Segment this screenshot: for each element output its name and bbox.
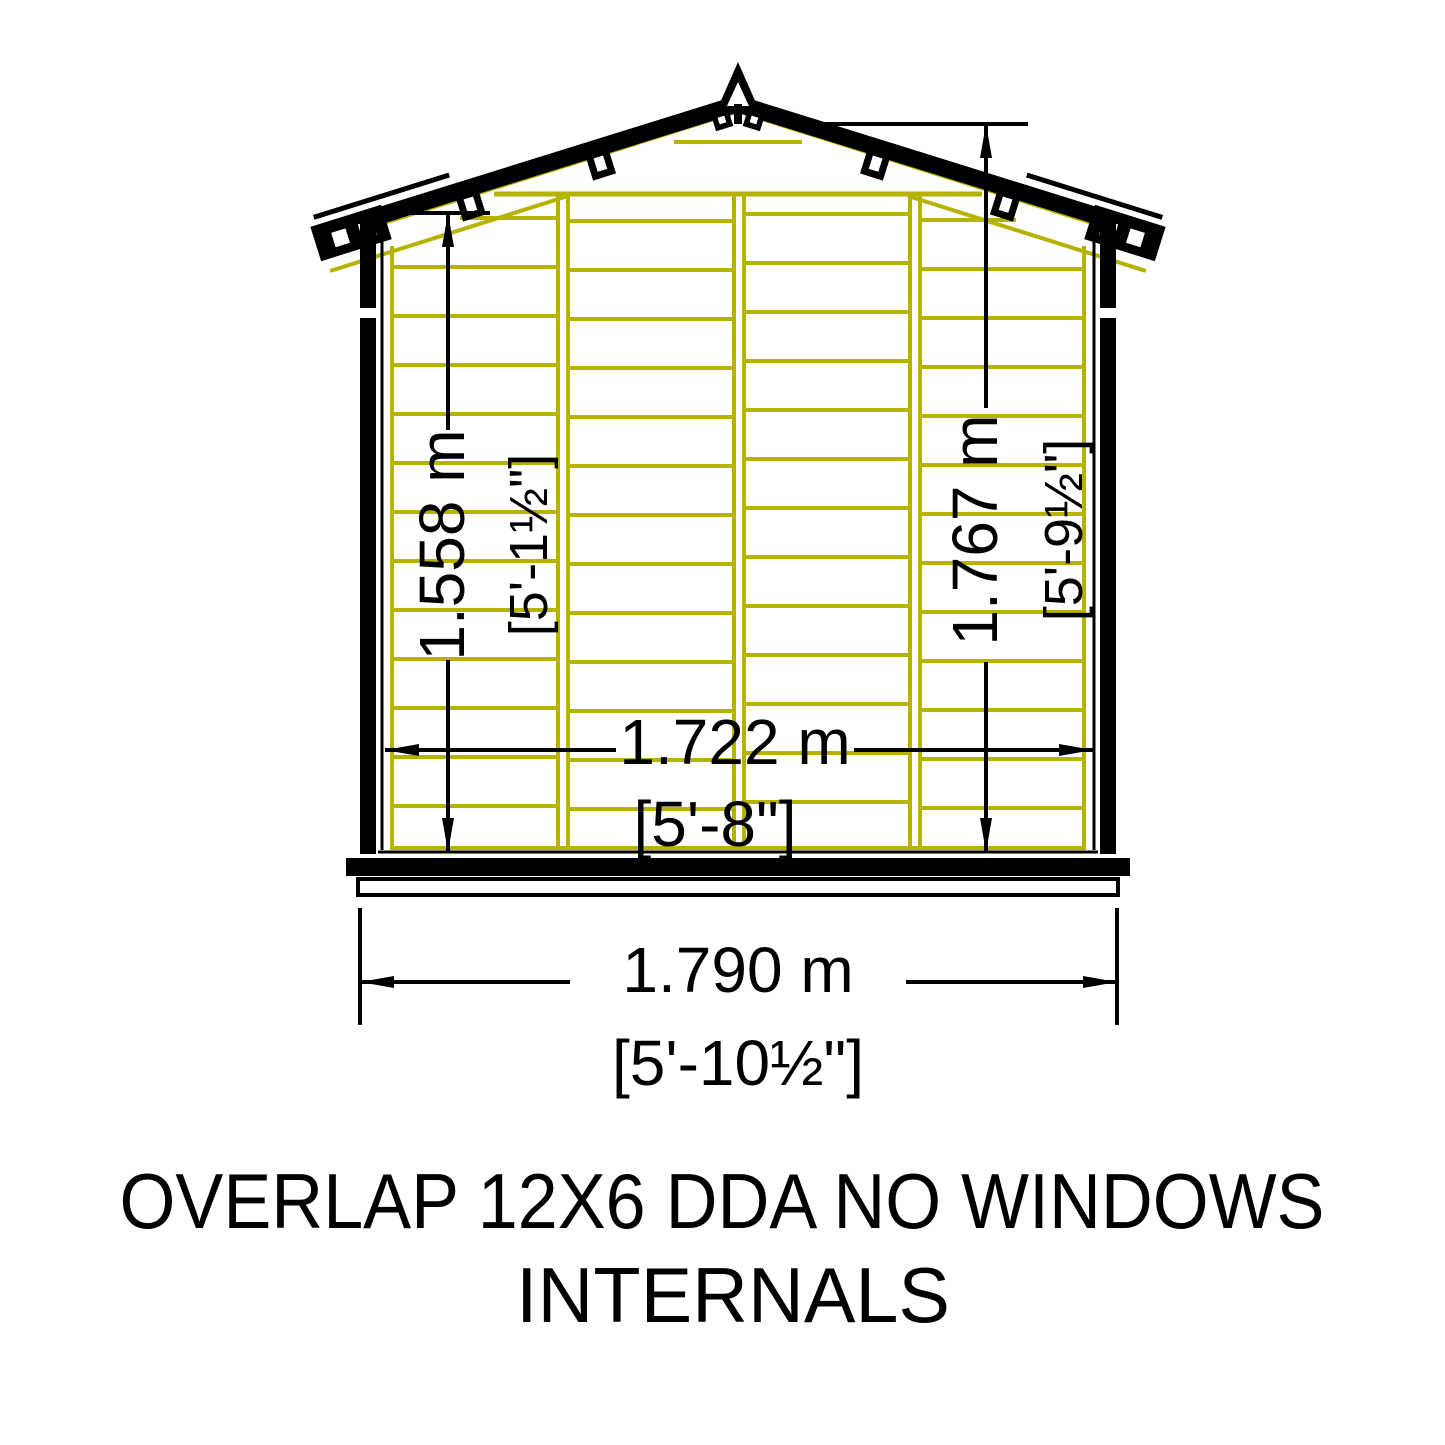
overall-width-metric-label: 1.790 m <box>622 934 853 1006</box>
drawing-page: 1.558 m [5'-1½"] 1.767 m [5'-9½"] 1.722 … <box>0 0 1445 1445</box>
roof <box>308 62 1168 261</box>
internal-width-metric-label: 1.722 m <box>619 706 850 778</box>
wall-left-upper <box>360 220 376 308</box>
wall-right-upper <box>1100 220 1116 308</box>
dimension-overall-width: 1.790 m [5'-10½"] <box>360 908 1117 1099</box>
title-line-2: INTERNALS <box>516 1251 950 1339</box>
internal-width-imperial-label: [5'-8"] <box>634 788 797 860</box>
ridge-height-metric-label: 1.767 m <box>939 414 1011 645</box>
title-line-1: OVERLAP 12X6 DDA NO WINDOWS <box>120 1157 1325 1245</box>
ridge-height-imperial-label: [5'-9½"] <box>1034 439 1094 622</box>
floor-bearer <box>346 858 1130 876</box>
wall-left-lower <box>360 318 376 854</box>
shed-elevation-drawing: 1.558 m [5'-1½"] 1.767 m [5'-9½"] 1.722 … <box>0 0 1445 1445</box>
skid-base <box>358 879 1118 895</box>
eaves-height-imperial-label: [5'-1½"] <box>499 454 559 637</box>
overall-width-imperial-label: [5'-10½"] <box>612 1027 864 1099</box>
wall-right-lower <box>1100 318 1116 854</box>
eaves-height-metric-label: 1.558 m <box>406 429 478 660</box>
barge-return-right <box>1014 175 1168 261</box>
barge-return-left <box>308 175 462 261</box>
drawing-title: OVERLAP 12X6 DDA NO WINDOWS INTERNALS <box>120 1157 1325 1339</box>
